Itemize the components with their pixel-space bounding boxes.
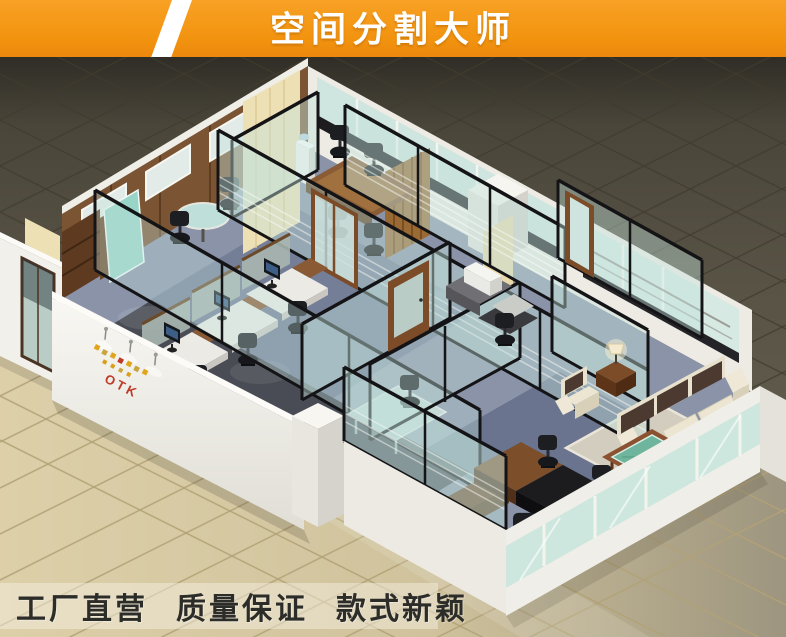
title-banner: 空间分割大师 (0, 0, 786, 57)
office-3d-render: OTK (0, 0, 786, 637)
slogan-style: 款式新颖 (336, 584, 468, 628)
corner-column (292, 403, 344, 527)
slogan-strip: 工厂直营 质量保证 款式新颖 (0, 583, 438, 629)
slogan-quality: 质量保证 (176, 584, 308, 628)
slogan-factory-direct: 工厂直营 (16, 584, 148, 628)
promo-image: OTK 空间分割大师 工厂直营 质量保证 款式新颖 (0, 0, 786, 637)
banner-title: 空间分割大师 (0, 1, 786, 52)
entry-door (22, 258, 54, 372)
